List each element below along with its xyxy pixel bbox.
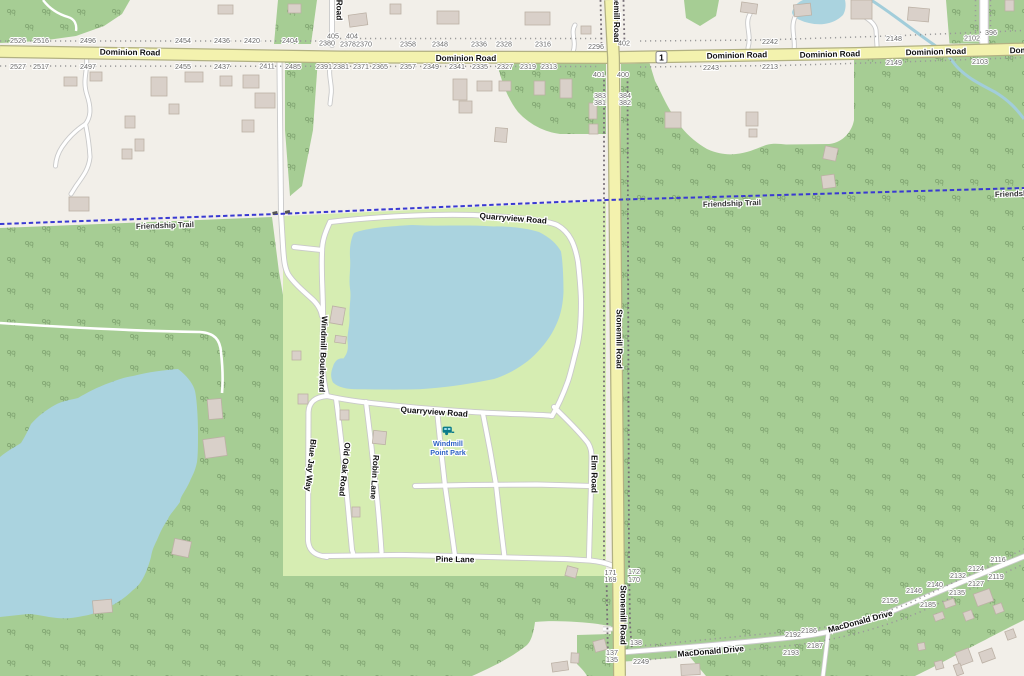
svg-text:405: 405	[327, 32, 339, 41]
svg-text:Windmill: Windmill	[433, 439, 463, 448]
svg-text:169: 169	[605, 575, 617, 584]
svg-text:2249: 2249	[633, 657, 649, 666]
svg-text:2185: 2185	[920, 600, 936, 609]
svg-text:1: 1	[659, 52, 664, 62]
svg-text:2436: 2436	[214, 36, 230, 45]
svg-text:2497: 2497	[80, 62, 96, 71]
svg-text:2496: 2496	[80, 36, 96, 45]
svg-text:2516: 2516	[33, 36, 49, 45]
svg-text:2404: 2404	[282, 36, 298, 45]
svg-text:382: 382	[619, 98, 631, 107]
svg-text:2116: 2116	[990, 555, 1005, 564]
svg-text:2146: 2146	[906, 586, 922, 595]
svg-text:2336: 2336	[471, 40, 487, 49]
svg-text:2102: 2102	[964, 34, 980, 43]
svg-text:2335: 2335	[472, 62, 488, 71]
svg-text:Stonemill Road: Stonemill Road	[615, 309, 624, 369]
svg-text:Stonemill Road: Stonemill Road	[619, 585, 628, 645]
svg-text:2192: 2192	[785, 630, 801, 639]
svg-text:2517: 2517	[33, 62, 49, 71]
svg-text:2313: 2313	[541, 62, 557, 71]
svg-text:2437: 2437	[214, 62, 230, 71]
svg-text:2103: 2103	[972, 57, 988, 66]
svg-text:2149: 2149	[886, 58, 902, 67]
svg-text:Dominion Road: Dominion Road	[800, 49, 861, 60]
svg-text:2357: 2357	[400, 62, 416, 71]
svg-text:2485: 2485	[285, 62, 301, 71]
svg-text:2527: 2527	[10, 62, 26, 71]
svg-text:Dominion Road: Dominion Road	[1010, 45, 1024, 56]
svg-text:Elm Road: Elm Road	[590, 455, 599, 493]
svg-text:2371: 2371	[353, 62, 369, 71]
svg-text:2358: 2358	[400, 40, 416, 49]
svg-text:2193: 2193	[783, 648, 799, 657]
svg-text:170: 170	[628, 575, 640, 584]
svg-text:402: 402	[618, 39, 630, 48]
svg-text:2242: 2242	[762, 37, 778, 46]
svg-text:2411: 2411	[259, 62, 274, 71]
svg-text:2119: 2119	[988, 572, 1003, 581]
svg-text:2148: 2148	[886, 34, 902, 43]
svg-text:2365: 2365	[372, 62, 388, 71]
svg-text:Road: Road	[335, 0, 344, 20]
svg-text:135: 135	[606, 655, 618, 664]
svg-text:401: 401	[593, 70, 605, 79]
svg-text:2296: 2296	[588, 42, 604, 51]
svg-text:Dominion Road: Dominion Road	[707, 50, 768, 61]
svg-text:Friendship Trail: Friendship Trail	[995, 188, 1024, 199]
svg-text:2319: 2319	[520, 62, 536, 71]
svg-text:2316: 2316	[535, 40, 551, 49]
svg-text:396: 396	[985, 28, 997, 37]
svg-text:400: 400	[617, 70, 629, 79]
svg-text:2156: 2156	[882, 596, 898, 605]
svg-text:2341: 2341	[449, 62, 465, 71]
svg-text:2187: 2187	[807, 641, 823, 650]
svg-text:2348: 2348	[432, 40, 448, 49]
svg-text:2327: 2327	[497, 62, 513, 71]
svg-text:2140: 2140	[927, 580, 943, 589]
svg-text:2328: 2328	[496, 40, 512, 49]
svg-text:2454: 2454	[175, 36, 191, 45]
svg-text:381: 381	[594, 98, 606, 107]
svg-text:2349: 2349	[423, 62, 439, 71]
svg-text:2378: 2378	[340, 40, 356, 49]
svg-text:2135: 2135	[949, 588, 965, 597]
svg-text:Point Park: Point Park	[430, 448, 466, 457]
svg-text:2124: 2124	[968, 564, 984, 573]
svg-text:2370: 2370	[356, 40, 372, 49]
svg-text:2455: 2455	[175, 62, 191, 71]
svg-text:2127: 2127	[968, 579, 984, 588]
svg-text:2381: 2381	[333, 62, 349, 71]
svg-text:2186: 2186	[801, 626, 817, 635]
svg-text:Dominion Road: Dominion Road	[100, 48, 161, 58]
svg-text:Stonemill Road: Stonemill Road	[612, 0, 621, 42]
svg-text:2391: 2391	[316, 62, 332, 71]
svg-text:404: 404	[346, 32, 358, 41]
svg-text:2420: 2420	[244, 36, 260, 45]
svg-text:2243: 2243	[703, 63, 719, 72]
svg-text:138: 138	[630, 638, 642, 647]
svg-text:Pine Lane: Pine Lane	[436, 555, 475, 565]
svg-text:2132: 2132	[950, 571, 966, 580]
svg-text:2213: 2213	[762, 62, 778, 71]
svg-text:Dominion Road: Dominion Road	[906, 47, 967, 58]
svg-text:2526: 2526	[10, 36, 26, 45]
